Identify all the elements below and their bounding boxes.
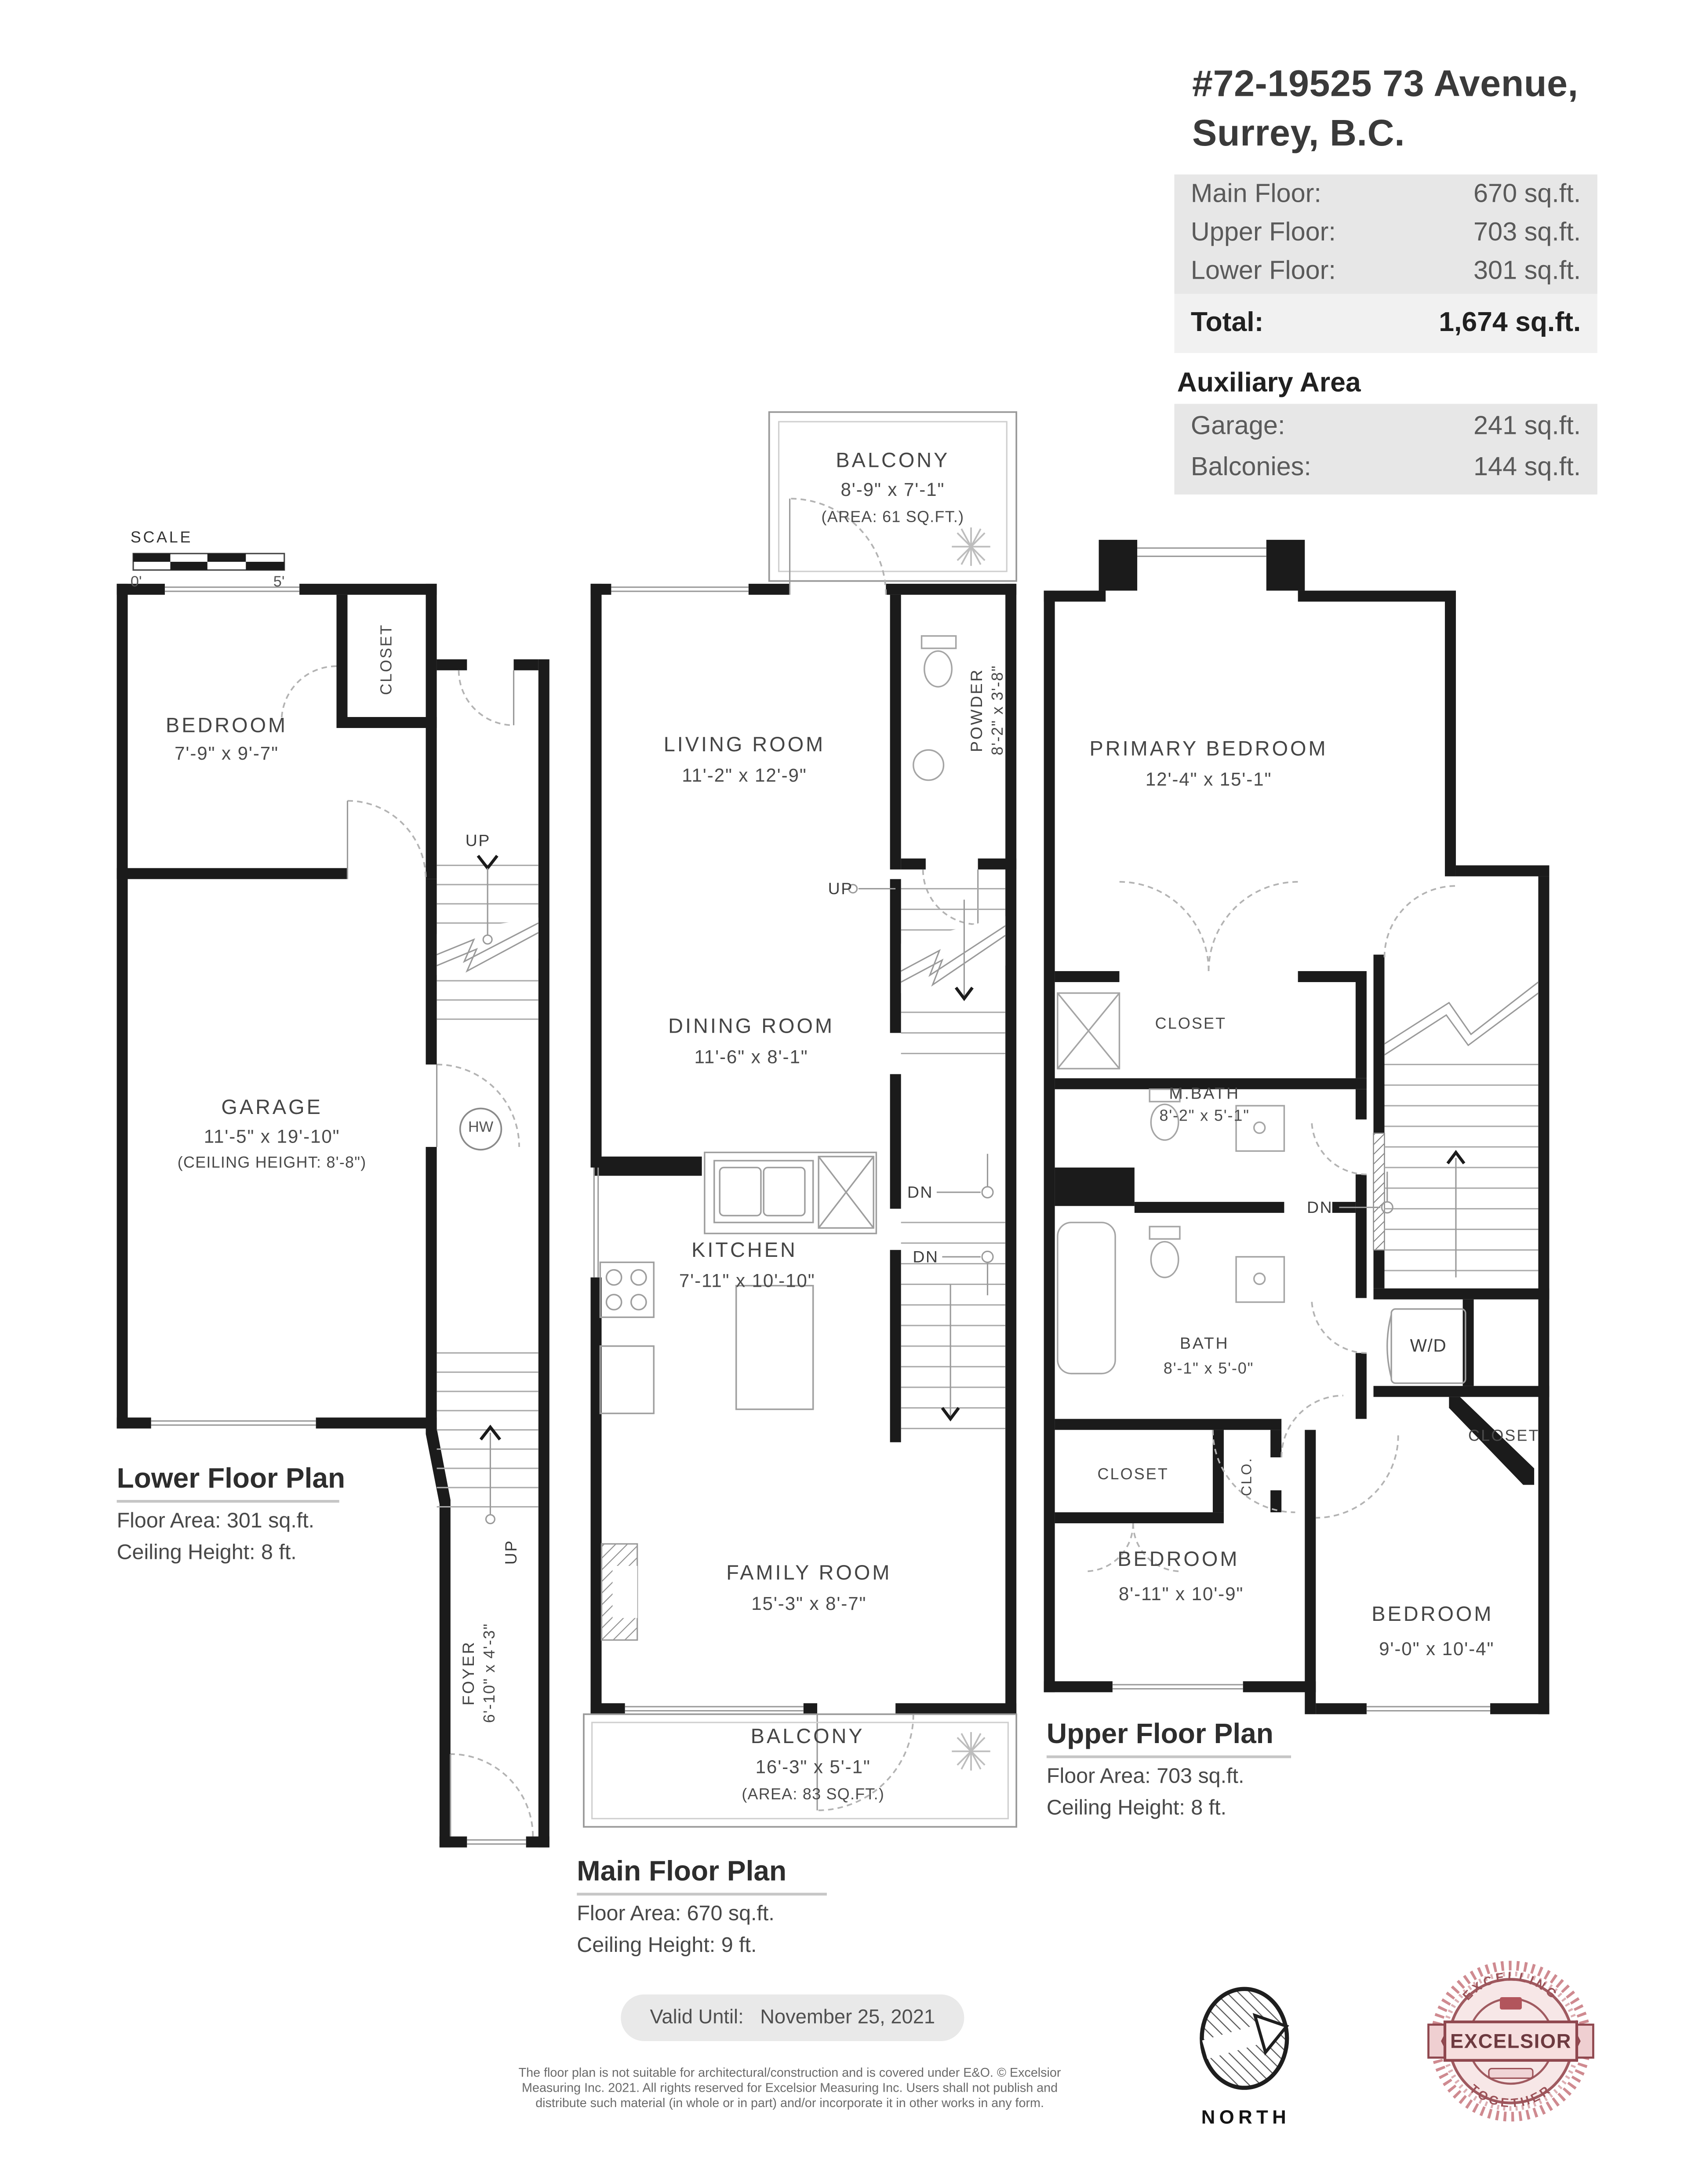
foyer-dims: 6'-10" x 4'-3" <box>482 1623 498 1723</box>
bath-dims: 8'-1" x 5'-0" <box>1164 1361 1254 1377</box>
bedroom-label: BEDROOM <box>1117 1548 1239 1571</box>
floor-area-row: Main Floor: 670 sq.ft. <box>1174 176 1597 214</box>
north-compass-icon <box>1192 1982 1299 2097</box>
stairs-lower <box>437 1353 538 1524</box>
floor-area-row: Upper Floor: 703 sq.ft. <box>1174 214 1597 252</box>
disclaimer-line: The floor plan is not suitable for archi… <box>474 2066 1106 2081</box>
living-room-label: LIVING ROOM <box>664 733 826 757</box>
title-underline <box>117 1500 339 1502</box>
aux-value: 241 sq.ft. <box>1473 407 1581 448</box>
up-label: UP <box>501 1540 520 1565</box>
floor-area-row: Lower Floor: 301 sq.ft. <box>1174 253 1597 291</box>
address-line2: Surrey, B.C. <box>1192 113 1604 155</box>
scale-bar <box>133 553 284 570</box>
disclaimer-line: distribute such material (in whole or in… <box>474 2096 1106 2111</box>
auxiliary-heading: Auxiliary Area <box>1177 368 1361 400</box>
garage-ceiling-note: (CEILING HEIGHT: 8'-8") <box>178 1155 367 1172</box>
kitchen-dims: 7'-11" x 10'-10" <box>679 1270 815 1291</box>
auxiliary-row: Garage: 241 sq.ft. <box>1174 407 1597 448</box>
floor-area-panel: Main Floor: 670 sq.ft. Upper Floor: 703 … <box>1174 175 1597 294</box>
aux-label: Balconies: <box>1191 448 1311 489</box>
valid-until-badge: Valid Until: November 25, 2021 <box>621 1995 964 2041</box>
fireplace <box>602 1544 637 1640</box>
aux-value: 144 sq.ft. <box>1473 448 1581 489</box>
washer-dryer-label: W/D <box>1410 1335 1447 1356</box>
dn-label: DN <box>1307 1198 1333 1217</box>
floor-label: Lower Floor: <box>1191 253 1336 291</box>
powder-fixtures <box>913 636 956 780</box>
aux-label: Garage: <box>1191 407 1285 448</box>
primary-bedroom-dims: 12'-4" x 15'-1" <box>1146 769 1272 790</box>
garage-label: GARAGE <box>221 1096 323 1119</box>
floor-label: Upper Floor: <box>1191 214 1336 252</box>
title-underline <box>577 1893 827 1895</box>
scale-start: 0' <box>131 574 142 590</box>
total-value: 1,674 sq.ft. <box>1439 294 1581 353</box>
lower-floor-plan: SCALE 0' 5' CLOSET BEDROOM 7'-9" x 9'-7"… <box>117 529 557 1868</box>
garage-dims: 11'-5" x 19'-10" <box>204 1126 340 1147</box>
up-label: UP <box>466 831 491 850</box>
balcony-dims: 8'-9" x 7'-1" <box>840 479 945 500</box>
main-floor-plan: BALCONY 8'-9" x 7'-1" (AREA: 61 SQ.FT.) … <box>577 405 1037 1978</box>
north-label: NORTH <box>1198 2106 1294 2128</box>
plant-icon <box>952 528 990 566</box>
dining-room-label: DINING ROOM <box>668 1015 834 1038</box>
clo-label: CLO. <box>1239 1457 1255 1496</box>
bedroom-dims: 9'-0" x 10'-4" <box>1379 1639 1494 1660</box>
closet-label: CLOSET <box>1468 1428 1540 1445</box>
closet-label: CLOSET <box>1155 1016 1227 1033</box>
scale-label: SCALE <box>131 530 193 546</box>
floor-value: 703 sq.ft. <box>1473 214 1581 252</box>
balcony-label: BALCONY <box>836 449 949 473</box>
family-room-label: FAMILY ROOM <box>726 1562 891 1585</box>
dn-label: DN <box>913 1247 939 1267</box>
lower-plan-ceiling: Ceiling Height: 8 ft. <box>117 1541 297 1566</box>
closet-label: CLOSET <box>379 623 395 695</box>
auxiliary-row: Balconies: 144 sq.ft. <box>1174 448 1597 489</box>
family-room-dims: 15'-3" x 8'-7" <box>751 1593 866 1614</box>
floor-label: Main Floor: <box>1191 176 1321 214</box>
foyer-label: FOYER <box>459 1641 478 1706</box>
kitchen-label: KITCHEN <box>691 1239 797 1262</box>
dining-room-dims: 11'-6" x 8'-1" <box>695 1047 808 1067</box>
powder-dims: 8'-2" x 3'-8" <box>990 665 1007 755</box>
balcony-label: BALCONY <box>751 1725 865 1748</box>
total-row: Total: 1,674 sq.ft. <box>1174 294 1597 353</box>
lower-plan-area: Floor Area: 301 sq.ft. <box>117 1510 315 1534</box>
floor-value: 301 sq.ft. <box>1473 253 1581 291</box>
total-panel: Total: 1,674 sq.ft. <box>1174 294 1597 353</box>
balcony-area: (AREA: 61 SQ.FT.) <box>822 510 964 526</box>
windows <box>1113 548 1490 1711</box>
hw-label: HW <box>468 1119 493 1136</box>
upper-plan-area: Floor Area: 703 sq.ft. <box>1047 1765 1244 1790</box>
bedroom-dims: 7'-9" x 9'-7" <box>175 743 279 764</box>
plant-icon <box>952 1732 990 1770</box>
valid-until-label: Valid Until: <box>650 2007 744 2029</box>
upper-floor-plan: PRIMARY BEDROOM 12'-4" x 15'-1" CLOSET M… <box>1037 529 1579 1902</box>
lower-plan-title: Lower Floor Plan <box>117 1463 346 1496</box>
floorplan-page: #72-19525 73 Avenue, Surrey, B.C. Main F… <box>0 0 1688 2184</box>
scale-end: 5' <box>273 574 285 590</box>
balcony-area: (AREA: 83 SQ.FT.) <box>742 1787 884 1803</box>
main-plan-title: Main Floor Plan <box>577 1856 786 1889</box>
auxiliary-panel: Garage: 241 sq.ft. Balconies: 144 sq.ft. <box>1174 404 1597 495</box>
up-label: UP <box>828 879 853 899</box>
bath-label: BATH <box>1180 1334 1229 1353</box>
main-plan-ceiling: Ceiling Height: 9 ft. <box>577 1934 757 1958</box>
title-underline <box>1047 1755 1291 1758</box>
bedroom-label: BEDROOM <box>1371 1603 1493 1626</box>
mbath-label: M.BATH <box>1169 1084 1240 1103</box>
address-line1: #72-19525 73 Avenue, <box>1192 63 1604 106</box>
disclaimer-line: Measuring Inc. 2021. All rights reserved… <box>474 2081 1106 2096</box>
upper-plan-title: Upper Floor Plan <box>1047 1718 1273 1751</box>
closet-label: CLOSET <box>1097 1467 1169 1483</box>
stairs-upper <box>437 856 538 1019</box>
dn-label: DN <box>907 1183 933 1202</box>
balcony-dims: 16'-3" x 5'-1" <box>756 1757 871 1777</box>
living-room-dims: 11'-2" x 12'-9" <box>682 765 807 786</box>
stairs <box>1339 982 1538 1278</box>
primary-bedroom-label: PRIMARY BEDROOM <box>1090 738 1328 761</box>
bedroom-label: BEDROOM <box>166 714 287 738</box>
floor-value: 670 sq.ft. <box>1473 176 1581 214</box>
total-label: Total: <box>1191 294 1263 353</box>
valid-until-date: November 25, 2021 <box>760 2007 935 2029</box>
mbath-dims: 8'-2" x 5'-1" <box>1159 1108 1249 1125</box>
powder-label: POWDER <box>967 668 986 752</box>
bedroom-dims: 8'-11" x 10'-9" <box>1119 1584 1244 1605</box>
badge-middle-text: EXCELSIOR <box>1450 2030 1572 2053</box>
upper-plan-ceiling: Ceiling Height: 8 ft. <box>1047 1797 1226 1821</box>
main-plan-area: Floor Area: 670 sq.ft. <box>577 1902 775 1927</box>
excelsior-badge: EXCELSIOR EXCELLING TOGETHER <box>1426 1953 1596 2137</box>
